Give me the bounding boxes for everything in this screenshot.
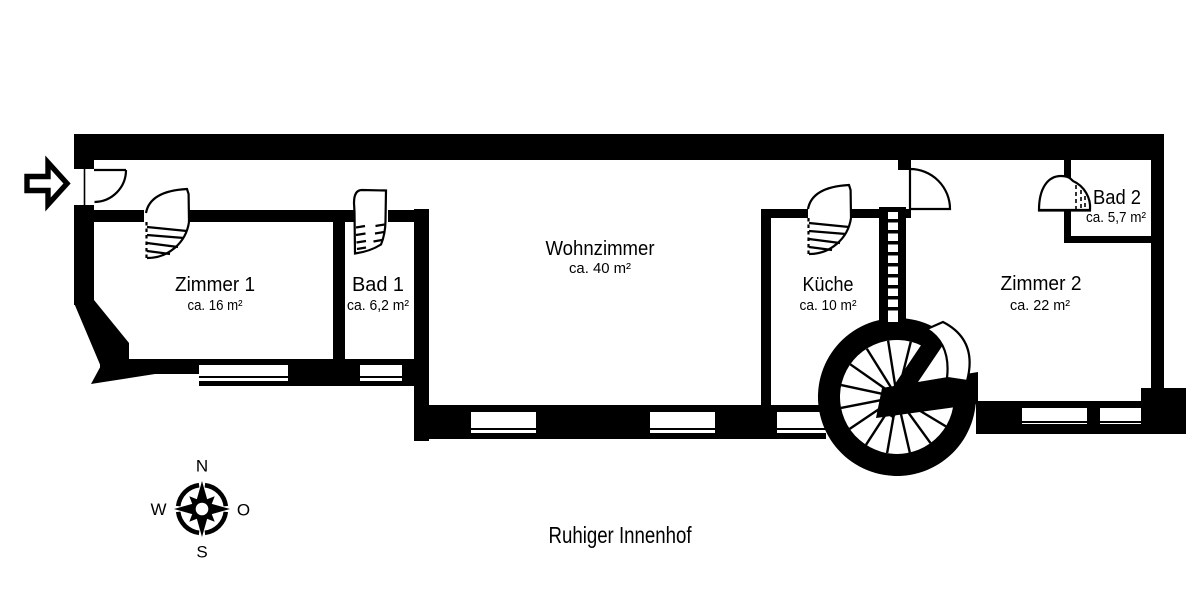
svg-text:O: O xyxy=(237,501,250,520)
svg-text:S: S xyxy=(196,543,207,562)
svg-text:Küche: Küche xyxy=(803,274,854,296)
svg-text:ca. 16 m²: ca. 16 m² xyxy=(188,298,243,314)
svg-text:Wohnzimmer: Wohnzimmer xyxy=(546,238,655,260)
svg-text:Bad 1: Bad 1 xyxy=(352,274,404,296)
svg-text:Ruhiger Innenhof: Ruhiger Innenhof xyxy=(549,522,692,548)
svg-text:ca. 6,2 m²: ca. 6,2 m² xyxy=(347,298,409,314)
svg-text:Zimmer 2: Zimmer 2 xyxy=(1001,273,1082,295)
svg-text:ca. 5,7 m²: ca. 5,7 m² xyxy=(1086,210,1146,226)
svg-text:ca. 40 m²: ca. 40 m² xyxy=(569,261,631,277)
svg-text:N: N xyxy=(196,457,208,476)
svg-text:W: W xyxy=(150,500,166,519)
svg-text:ca. 10 m²: ca. 10 m² xyxy=(800,298,857,314)
svg-text:ca. 22 m²: ca. 22 m² xyxy=(1010,298,1070,314)
svg-text:Zimmer 1: Zimmer 1 xyxy=(175,274,255,296)
svg-text:Bad 2: Bad 2 xyxy=(1093,187,1141,209)
